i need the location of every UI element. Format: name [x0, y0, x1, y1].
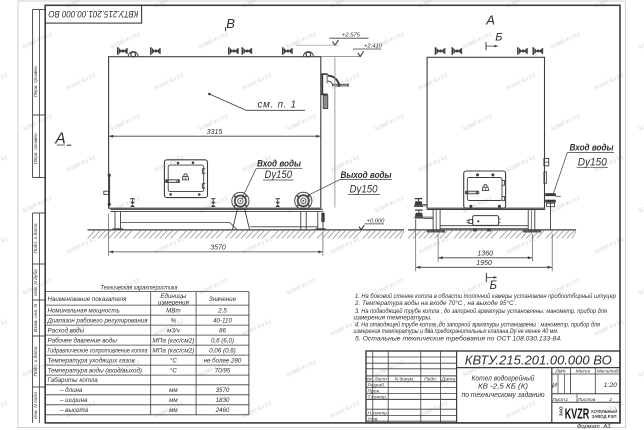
svg-text:Значение: Значение — [209, 296, 237, 303]
svg-text:Инв. N дубл.: Инв. N дубл. — [33, 268, 39, 296]
svg-text:5. Остальные технические треб: 5. Остальные технические требования по О… — [355, 334, 562, 342]
svg-text:КВТУ.215.201.00.000 ВО: КВТУ.215.201.00.000 ВО — [465, 352, 612, 367]
svg-text:МВт: МВт — [166, 307, 180, 314]
svg-text:КОТЕЛЬНЫЙ: КОТЕЛЬНЫЙ — [591, 407, 617, 414]
svg-text:2: 2 — [608, 397, 612, 403]
svg-text:Б: Б — [490, 280, 498, 292]
svg-text:Диапазон рабочего регулировани: Диапазон рабочего регулирования — [47, 317, 149, 324]
svg-text:по техническому заданию: по техническому заданию — [462, 390, 546, 399]
svg-text:Номинальная мощность: Номинальная мощность — [48, 307, 120, 314]
svg-text:1360: 1360 — [477, 251, 493, 258]
svg-text:1:20: 1:20 — [604, 382, 617, 389]
svg-text:3570: 3570 — [216, 387, 230, 394]
svg-text:Перв. примен.: Перв. примен. — [33, 65, 39, 97]
svg-text:1: 1 — [565, 397, 568, 403]
svg-text:– высота: – высота — [59, 407, 89, 414]
svg-text:1. На боковой стенке котла в: 1. На боковой стенке котла в области топ… — [355, 292, 616, 300]
svg-text:KVZR: KVZR — [565, 407, 590, 423]
svg-text:измерения: измерения — [158, 300, 190, 307]
svg-text:2,5: 2,5 — [217, 307, 227, 314]
svg-text:Подп. и дата: Подп. и дата — [33, 223, 39, 253]
svg-text:Изм.: Изм. — [366, 377, 372, 383]
svg-text:0,6 (6,0): 0,6 (6,0) — [211, 337, 234, 344]
svg-text:Вход воды: Вход воды — [570, 142, 614, 153]
svg-text:°С: °С — [170, 367, 177, 374]
svg-text:%: % — [171, 317, 177, 324]
svg-text:МПа (кгс/см2): МПа (кгс/см2) — [152, 337, 194, 344]
svg-text:И: И — [552, 382, 557, 389]
svg-text:Расход воды: Расход воды — [48, 327, 85, 334]
svg-text:Инв. N подл.: Инв. N подл. — [33, 391, 39, 419]
svg-text:МПа (кгс/см2): МПа (кгс/см2) — [152, 347, 194, 354]
svg-text:Наименование показателя: Наименование показателя — [48, 296, 128, 303]
svg-text:В: В — [226, 16, 235, 31]
svg-text:Dy150: Dy150 — [578, 156, 607, 168]
svg-text:Пров.: Пров. — [368, 389, 381, 395]
svg-text:Листов: Листов — [577, 397, 596, 403]
svg-text:0,06 (0,6): 0,06 (0,6) — [209, 347, 235, 354]
svg-text:3315: 3315 — [207, 129, 223, 136]
svg-text:Б: Б — [495, 32, 502, 44]
svg-text:Масса: Масса — [576, 368, 591, 374]
svg-text:– длина: – длина — [59, 387, 83, 394]
svg-text:70/95: 70/95 — [215, 367, 231, 374]
svg-text:А3: А3 — [602, 424, 611, 430]
svg-text:А: А — [485, 13, 495, 28]
svg-text:измерения температуры и два пр: измерения температуры и два предохраните… — [354, 327, 559, 335]
svg-text:Температура воды (вход/выход): Температура воды (вход/выход) — [48, 367, 142, 374]
svg-text:40-110: 40-110 — [213, 317, 232, 324]
svg-text:измерения температуры.: измерения температуры. — [354, 314, 432, 321]
svg-text:1830: 1830 — [216, 397, 230, 404]
svg-text:Т.контр.: Т.контр. — [368, 394, 388, 400]
svg-text:Вход воды: Вход воды — [257, 158, 301, 169]
svg-text:86: 86 — [219, 327, 226, 334]
svg-text:ЗАВОД РЭП: ЗАВОД РЭП — [592, 414, 617, 419]
svg-text:Взам. инв. N: Взам. инв. N — [33, 304, 39, 332]
svg-text:Дата: Дата — [440, 377, 455, 383]
svg-text:3570: 3570 — [210, 245, 226, 252]
svg-text:1950: 1950 — [476, 260, 492, 267]
svg-text:Габариты котла: Габариты котла — [48, 377, 99, 384]
svg-text:+2.575: +2.575 — [342, 33, 361, 39]
svg-text:Выход воды: Выход воды — [341, 169, 392, 180]
svg-text:см. п. 1: см. п. 1 — [258, 100, 297, 111]
svg-text:Подп. и дата: Подп. и дата — [33, 346, 39, 376]
svg-text:не более 280: не более 280 — [204, 357, 242, 364]
svg-text:Перв. примен.: Перв. примен. — [33, 132, 39, 164]
svg-text:Подп.: Подп. — [424, 377, 437, 383]
svg-text:Dy150: Dy150 — [265, 169, 293, 181]
svg-text:2460: 2460 — [215, 407, 230, 414]
svg-text:мм: мм — [169, 387, 178, 394]
svg-text:мм: мм — [169, 407, 178, 414]
svg-text:Dy150: Dy150 — [350, 184, 378, 196]
svg-text:м3/ч: м3/ч — [167, 327, 180, 334]
svg-text:Формат: Формат — [577, 424, 600, 430]
svg-text:+2.410: +2.410 — [364, 43, 383, 49]
svg-text:Масштаб: Масштаб — [597, 368, 619, 374]
svg-text:Температура уходящих газов: Температура уходящих газов — [48, 357, 136, 364]
svg-text:– ширина: – ширина — [59, 397, 88, 404]
svg-text:2. Температура воды на входе: 2. Температура воды на входе 70°С , на в… — [354, 299, 517, 307]
svg-text:ЗАО: ЗАО — [559, 406, 564, 416]
svg-text:Лист: Лист — [373, 377, 387, 383]
svg-text:Рабочее давление воды: Рабочее давление воды — [48, 337, 118, 344]
svg-text:Н.контр.: Н.контр. — [368, 410, 389, 416]
svg-text:Утв.: Утв. — [368, 416, 379, 422]
svg-text:КВТУ.215.201.00.000 ВО: КВТУ.215.201.00.000 ВО — [48, 9, 138, 19]
svg-text:мм: мм — [169, 397, 178, 404]
svg-text:Лист: Лист — [551, 397, 565, 403]
svg-text:Лит.: Лит. — [554, 368, 566, 374]
svg-text:Разраб.: Разраб. — [368, 383, 386, 389]
svg-text:N докум.: N докум. — [395, 377, 415, 383]
svg-text:°С: °С — [170, 357, 177, 364]
svg-text:+0.000: +0.000 — [367, 218, 386, 224]
svg-text:Техническая характеристика: Техническая характеристика — [101, 285, 178, 292]
svg-text:Гидравлическое сопротивление к: Гидравлическое сопротивление котла — [48, 347, 148, 354]
